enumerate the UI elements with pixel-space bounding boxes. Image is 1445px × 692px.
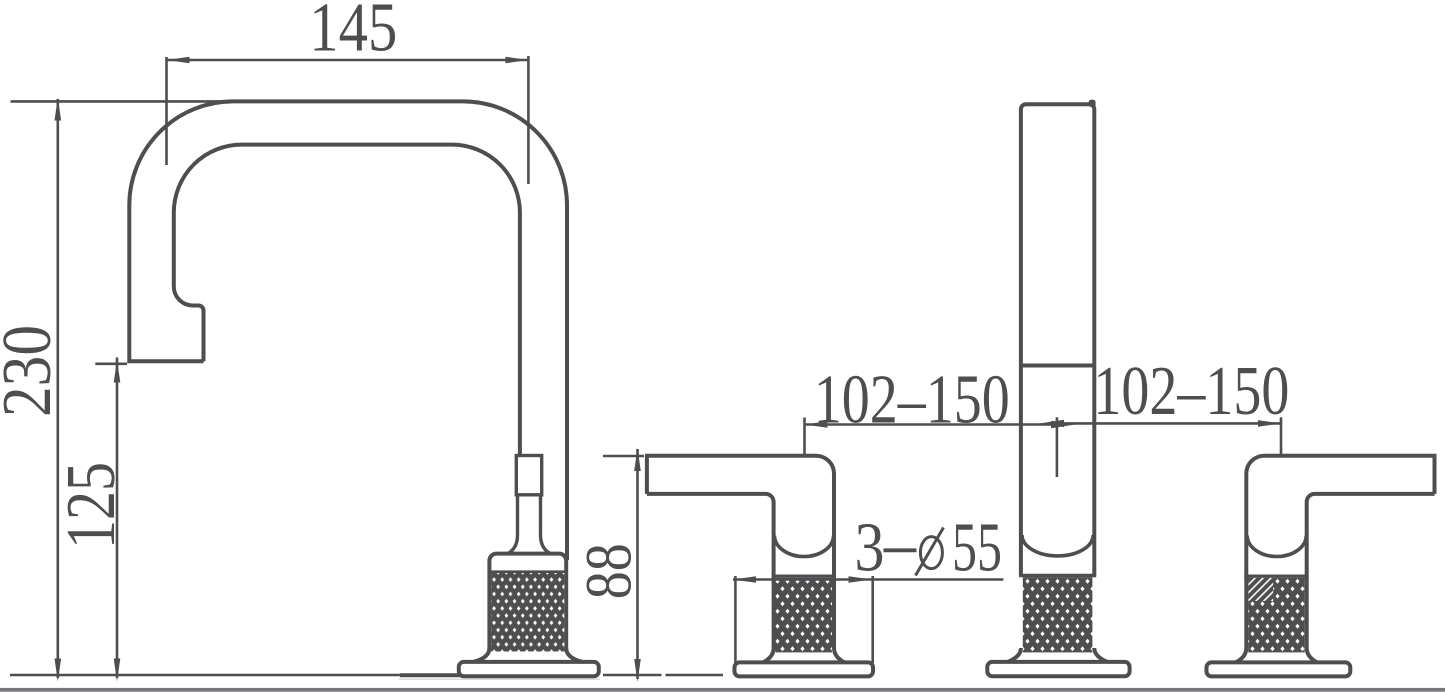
svg-text:3: 3 xyxy=(855,510,885,587)
svg-text:102–150: 102–150 xyxy=(814,362,1010,439)
svg-text:102–150: 102–150 xyxy=(1093,353,1289,430)
svg-text:125: 125 xyxy=(53,462,130,549)
svg-text:230: 230 xyxy=(0,325,66,417)
svg-text:55: 55 xyxy=(952,510,1002,587)
svg-text:88: 88 xyxy=(573,543,646,599)
svg-text:145: 145 xyxy=(309,0,397,67)
